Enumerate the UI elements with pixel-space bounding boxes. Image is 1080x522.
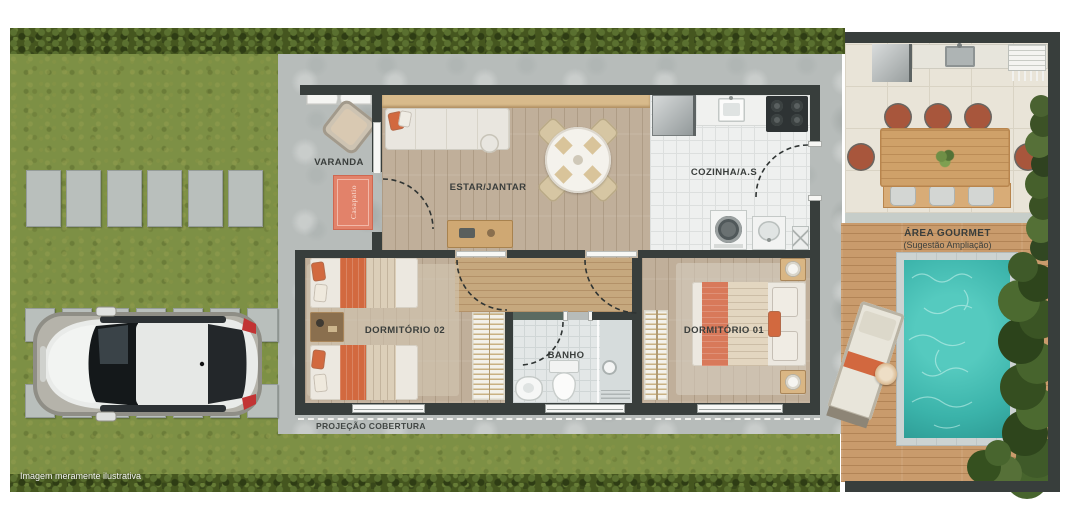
roof-projection-label: PROJEÇÃO COBERTURA xyxy=(316,421,426,431)
kitchen-label: COZINHA/A.S xyxy=(674,167,774,178)
floorplan-render: ÁREA GOURMET (Sugestão Ampliação) xyxy=(0,0,1080,522)
disclaimer-text: Imagem meramente ilustrativa xyxy=(20,471,141,481)
living-label: ESTAR/JANTAR xyxy=(438,182,538,193)
roof-projection-line xyxy=(298,418,820,420)
door-swing-arcs xyxy=(0,0,1080,522)
